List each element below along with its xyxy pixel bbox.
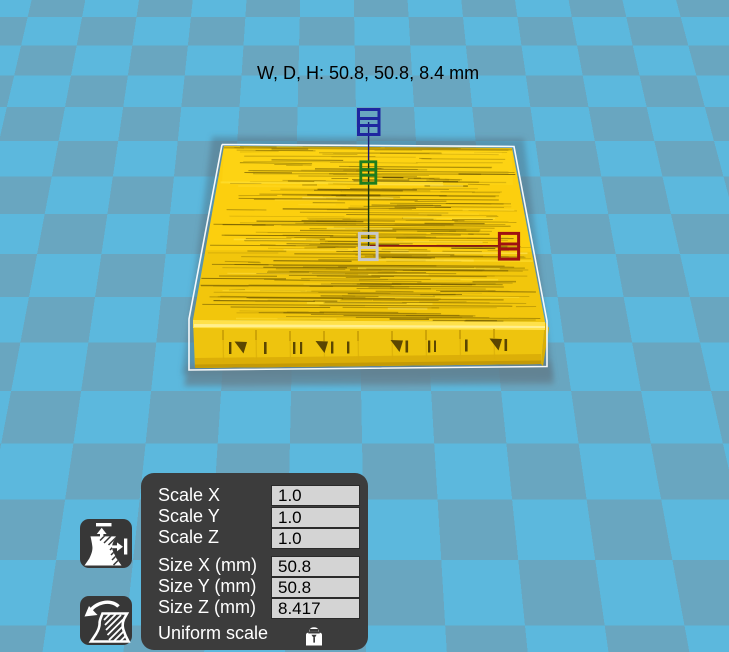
svg-text:W, D, H: 50.8, 50.8, 8.4 mm: W, D, H: 50.8, 50.8, 8.4 mm	[257, 63, 479, 83]
